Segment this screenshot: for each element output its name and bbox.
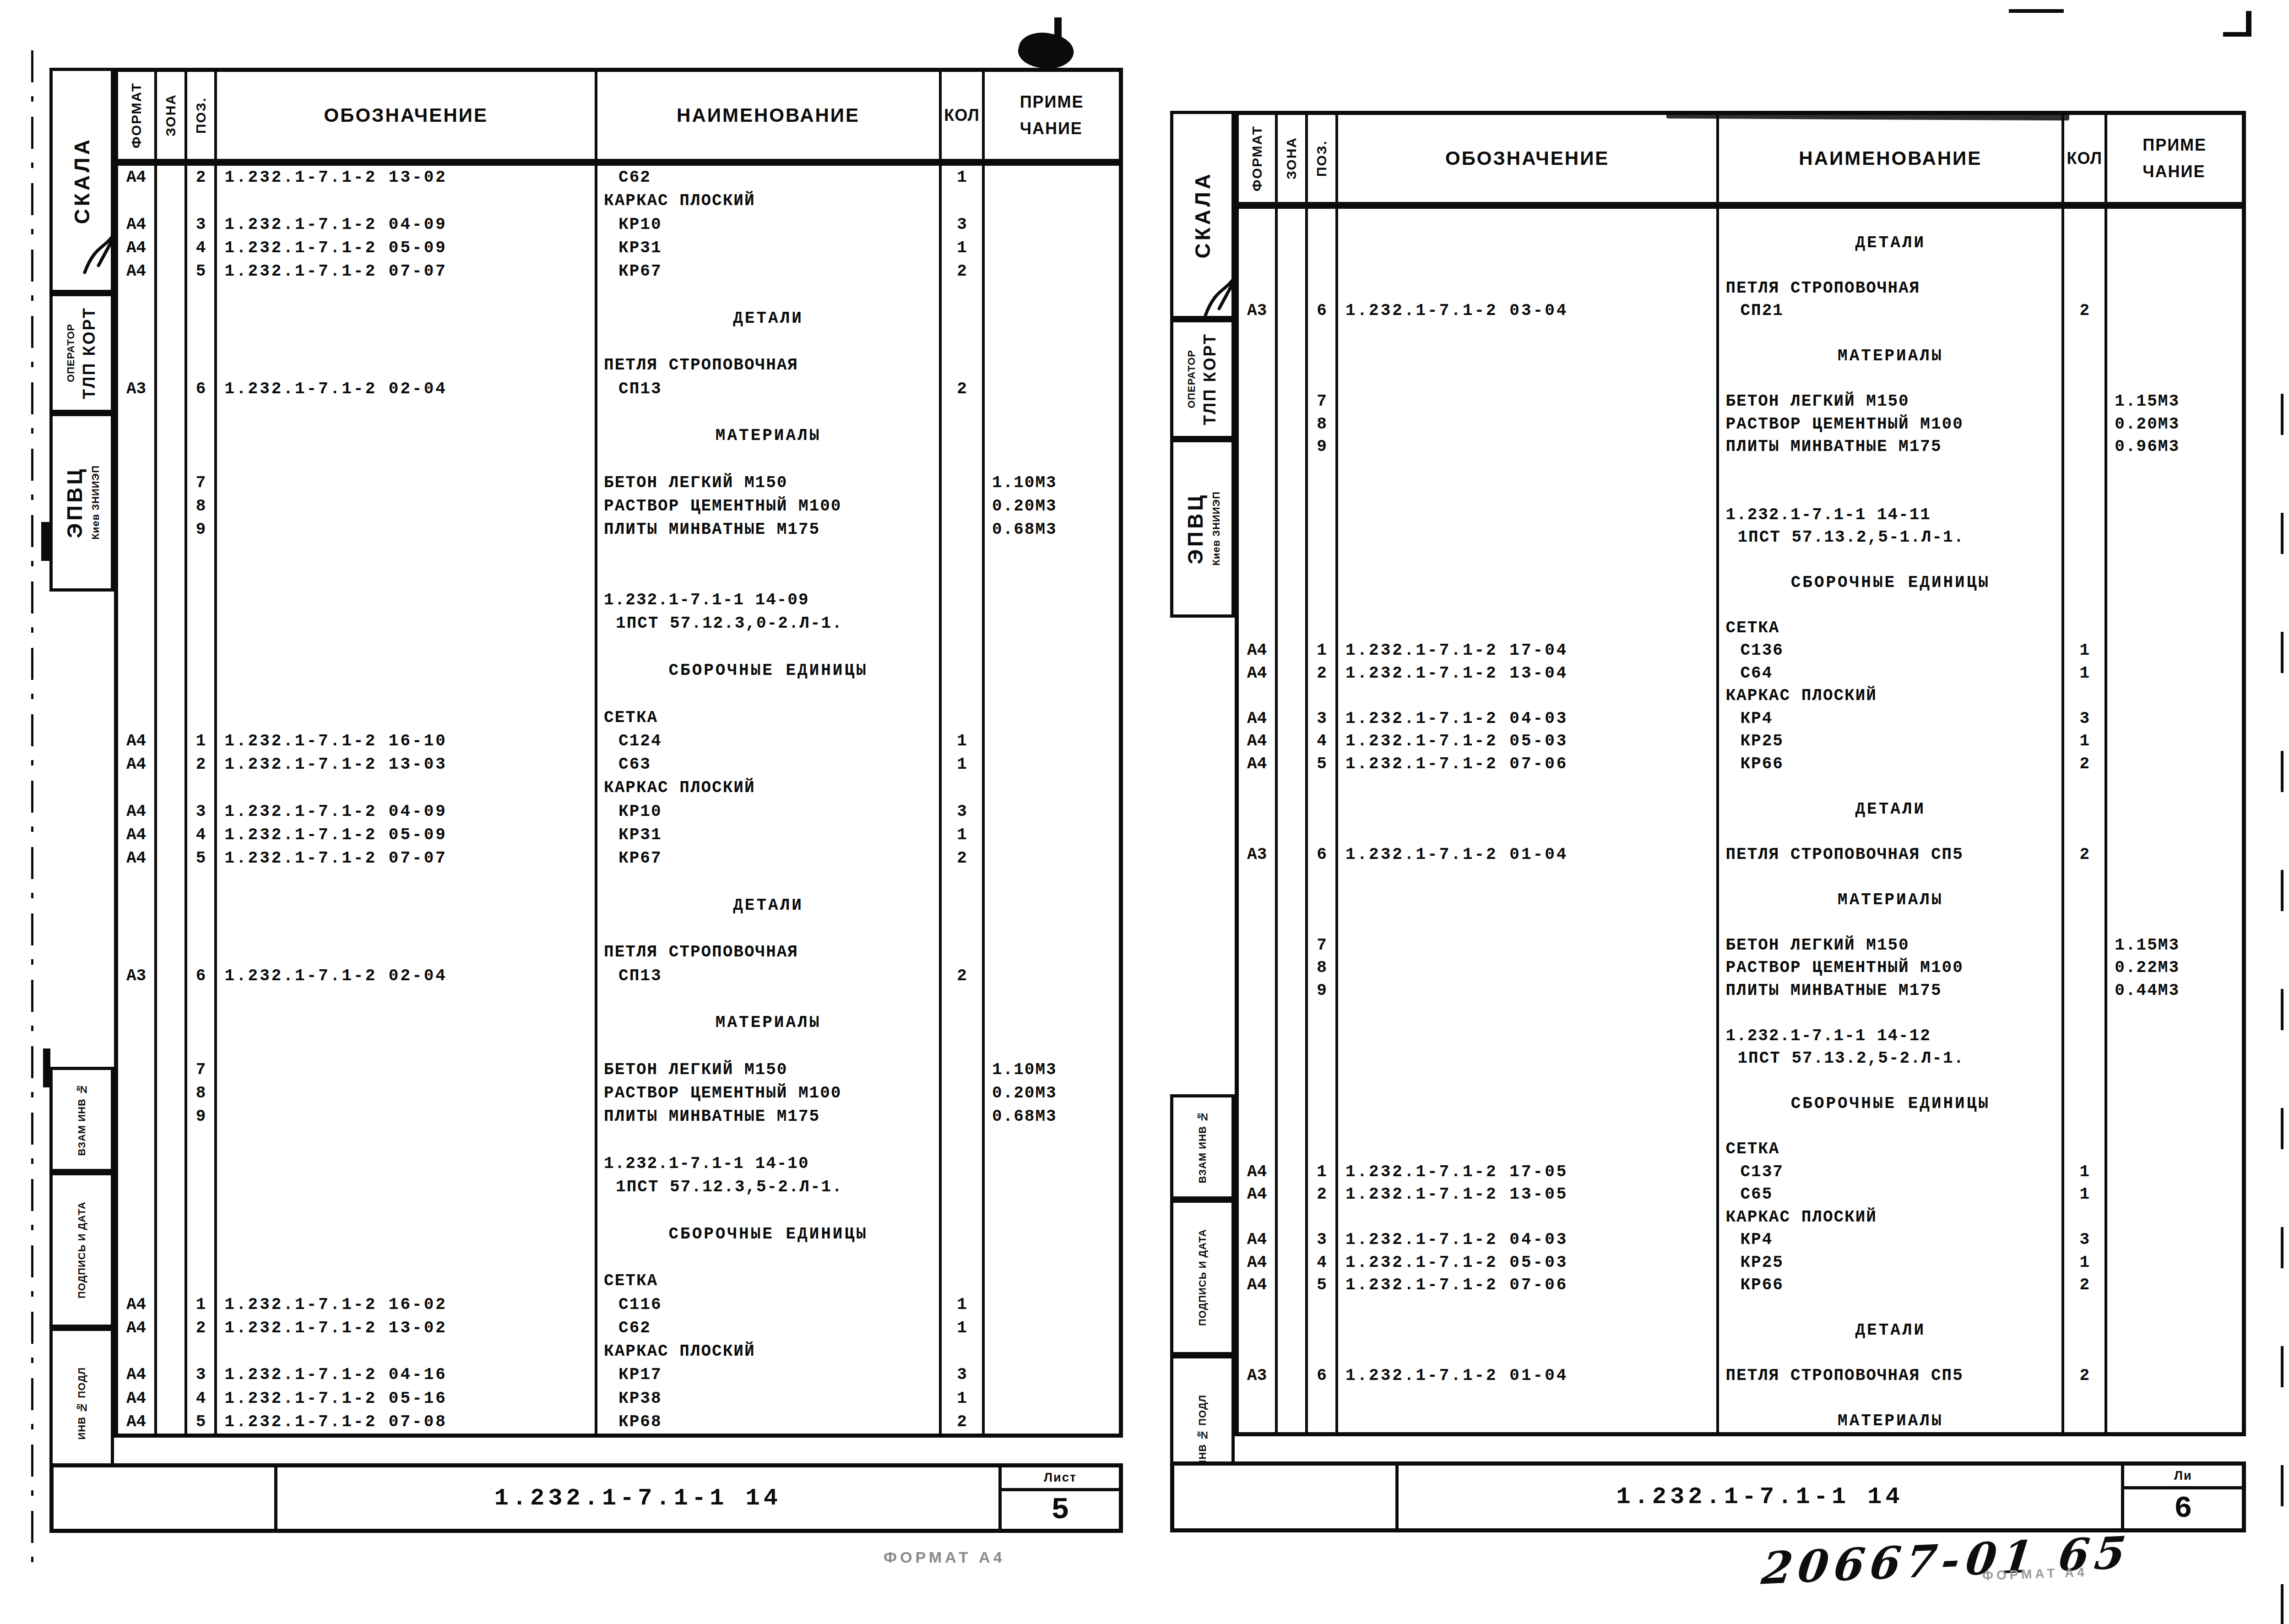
col-header-note: ПРИМЕЧАНИЕ (2107, 115, 2242, 202)
cell-t (2107, 209, 2242, 231)
cell-f (118, 1199, 157, 1222)
cell-z (1278, 1002, 1308, 1024)
cell-q: 3 (942, 1363, 985, 1386)
cell-d (217, 307, 597, 330)
cell-n: КР4 (1719, 707, 2064, 730)
cell-n: КР4 (1719, 1228, 2064, 1251)
cell-z (1278, 820, 1308, 843)
vzam-inv-label: ВЗАМ ИНВ № (1197, 1111, 1209, 1183)
cell-d: 1.232.1-7.1-2 01-04 (1338, 1364, 1719, 1387)
cell-p (187, 612, 217, 635)
cell-z (157, 1152, 187, 1175)
cell-t (985, 1246, 1119, 1269)
cell-n: 1ПСТ 57.13.2,5-1.Л-1. (1719, 526, 2064, 549)
cell-d: 1.232.1-7.1-2 07-06 (1338, 753, 1719, 775)
cell-n (597, 988, 942, 1011)
cell-f: А4 (118, 260, 157, 283)
cell-z (157, 706, 187, 729)
cell-q (2064, 1387, 2107, 1409)
col-header-format: ФОРМАТ (118, 72, 157, 159)
cell-p (1308, 571, 1338, 594)
cell-p: 8 (1308, 413, 1338, 435)
cell-n: 1.232.1-7.1-1 14-11 (1719, 503, 2064, 526)
cell-z (1278, 753, 1308, 775)
cell-q (2064, 866, 2107, 888)
cell-d (217, 1129, 597, 1152)
cell-p (187, 706, 217, 729)
cell-z (157, 213, 187, 236)
cell-q (2064, 1070, 2107, 1092)
cell-q (2064, 209, 2107, 231)
cell-n (1719, 458, 2064, 480)
cell-p: 4 (1308, 1251, 1338, 1273)
cell-q (942, 706, 985, 729)
cell-z (157, 1222, 187, 1246)
cell-z (1278, 435, 1308, 458)
cell-q: 1 (2064, 1183, 2107, 1206)
cell-t (2107, 1024, 2242, 1047)
cell-f (1239, 1342, 1278, 1364)
cell-q: 1 (942, 236, 985, 260)
cell-q (942, 1269, 985, 1293)
cell-q (942, 612, 985, 635)
cell-d: 1.232.1-7.1-2 13-03 (217, 753, 597, 776)
table-row: А421.232.1-7.1-2 13-03С631 (118, 753, 1119, 776)
cell-q (2064, 1047, 2107, 1070)
cell-q (942, 988, 985, 1011)
cell-f (118, 401, 157, 424)
cell-q (942, 447, 985, 471)
cell-t (2107, 299, 2242, 322)
cell-z (1278, 526, 1308, 549)
cell-f (1239, 617, 1278, 639)
table-row (1239, 254, 2242, 277)
organization-city: Киев ЗНИИЭП (90, 465, 102, 540)
cell-z (157, 1293, 187, 1316)
sheet-number-box: Лист 5 (1002, 1467, 1119, 1529)
cell-t (985, 1175, 1119, 1199)
cell-p (1308, 367, 1338, 390)
cell-t (985, 424, 1119, 447)
cell-p (187, 330, 217, 353)
cell-t (2107, 1274, 2242, 1296)
cell-q (2064, 1115, 2107, 1137)
cell-n: МАТЕРИАЛЫ (1719, 889, 2064, 911)
cell-p (187, 401, 217, 424)
cell-f (118, 635, 157, 659)
organization-box: ЭПВЦ Киев ЗНИИЭП (1170, 439, 1235, 618)
cell-q (2064, 775, 2107, 798)
cut-line-right (2281, 394, 2284, 1624)
table-row: СБОРОЧНЫЕ ЕДИНИЦЫ (118, 659, 1119, 682)
cell-q (942, 682, 985, 706)
cell-p (187, 1034, 217, 1058)
cell-z (1278, 1387, 1308, 1409)
cell-z (1278, 322, 1308, 344)
cell-d (217, 1105, 597, 1128)
cell-f (1239, 367, 1278, 390)
cell-d (1338, 458, 1719, 480)
cell-t (985, 189, 1119, 212)
cell-z (1278, 1092, 1308, 1115)
cell-d (217, 330, 597, 353)
inv-podl-label: ИНВ № ПОДЛ (1197, 1395, 1209, 1467)
cell-n: СЕТКА (1719, 1138, 2064, 1160)
cell-d (217, 894, 597, 917)
table-row: 1ПСТ 57.12.3,5-2.Л-1. (118, 1175, 1119, 1199)
cell-z (157, 166, 187, 189)
cell-n: КАРКАС ПЛОСКИЙ (597, 189, 942, 212)
cell-n: СБОРОЧНЫЕ ЕДИНИЦЫ (1719, 571, 2064, 594)
cell-t (985, 776, 1119, 799)
table-row: ДЕТАЛИ (118, 894, 1119, 917)
cell-n (597, 870, 942, 893)
table-row: 1ПСТ 57.13.2,5-1.Л-1. (1239, 526, 2242, 549)
cell-f (1239, 889, 1278, 911)
cell-d: 1.232.1-7.1-2 05-09 (217, 236, 597, 260)
cell-n (597, 635, 942, 659)
cell-p: 3 (187, 800, 217, 823)
cell-p (187, 917, 217, 940)
cell-f (1239, 1410, 1278, 1432)
cell-d: 1.232.1-7.1-2 07-07 (217, 847, 597, 870)
table-row: ДЕТАЛИ (118, 307, 1119, 330)
cell-p: 1 (1308, 1160, 1338, 1183)
margin-tick (41, 522, 49, 561)
cell-n (1719, 209, 2064, 231)
cell-p: 6 (187, 377, 217, 401)
table-row: МАТЕРИАЛЫ (1239, 889, 2242, 911)
cell-q: 3 (2064, 707, 2107, 730)
table-row: 7БЕТОН ЛЕГКИЙ М1501.10М3 (118, 1058, 1119, 1081)
cell-d (1338, 367, 1719, 390)
cell-d (217, 1081, 597, 1105)
cell-z (157, 1081, 187, 1105)
cell-q (2064, 956, 2107, 979)
table-row: А361.232.1-7.1-2 01-04ПЕТЛЯ СТРОПОВОЧНАЯ… (1239, 843, 2242, 866)
cell-t (985, 1269, 1119, 1293)
table-row: А451.232.1-7.1-2 07-07КР672 (118, 260, 1119, 283)
cell-d (217, 1034, 597, 1058)
cell-d (1338, 820, 1719, 843)
cell-n: СЕТКА (1719, 617, 2064, 639)
cell-n: ПЛИТЫ МИНВАТНЫЕ М175 (597, 518, 942, 541)
cell-q (942, 776, 985, 799)
cell-z (157, 682, 187, 706)
cell-f (118, 588, 157, 612)
cell-t (985, 1410, 1119, 1434)
cell-n: 1.232.1-7.1-1 14-10 (597, 1152, 942, 1175)
cell-z (1278, 956, 1308, 979)
cell-f (1239, 231, 1278, 254)
cell-d (217, 1246, 597, 1269)
cell-q (2064, 594, 2107, 616)
table-row: А451.232.1-7.1-2 07-06КР662 (1239, 753, 2242, 775)
cell-t (985, 635, 1119, 659)
cell-n: КР17 (597, 1363, 942, 1386)
cell-n: БЕТОН ЛЕГКИЙ М150 (597, 471, 942, 494)
title-block-empty (54, 1467, 277, 1529)
format-note-left: ФОРМАТ А4 (884, 1548, 1005, 1566)
cell-t (2107, 458, 2242, 480)
table-row: МАТЕРИАЛЫ (1239, 1410, 2242, 1432)
cell-q: 1 (2064, 730, 2107, 752)
cell-t (2107, 503, 2242, 526)
cell-p: 6 (1308, 299, 1338, 322)
cell-t (2107, 254, 2242, 277)
cell-n (1719, 1115, 2064, 1137)
operator-value: ТЛП КОРТ (1200, 333, 1220, 425)
cell-q (2064, 934, 2107, 956)
cell-p: 5 (187, 847, 217, 870)
cell-d (1338, 1024, 1719, 1047)
table-row: СБОРОЧНЫЕ ЕДИНИЦЫ (1239, 571, 2242, 594)
table-row: 9ПЛИТЫ МИНВАТНЫЕ М1750.44М3 (1239, 979, 2242, 1001)
table-row: А441.232.1-7.1-2 05-09КР311 (118, 823, 1119, 847)
cell-t (985, 1293, 1119, 1316)
organization-city: Киев ЗНИИЭП (1210, 491, 1222, 566)
cell-q: 3 (942, 800, 985, 823)
cell-z (1278, 1296, 1308, 1319)
cell-t (985, 1152, 1119, 1175)
cell-z (1278, 345, 1308, 367)
cell-z (157, 917, 187, 940)
table-row: 9ПЛИТЫ МИНВАТНЫЕ М1750.68М3 (118, 1105, 1119, 1128)
cell-z (1278, 1024, 1308, 1047)
cell-t: 0.68М3 (985, 518, 1119, 541)
cell-q (2064, 798, 2107, 820)
cell-p: 4 (187, 236, 217, 260)
cell-p: 4 (187, 823, 217, 847)
operator-box: ОПЕРАТОР ТЛП КОРТ (49, 293, 114, 413)
cell-t (985, 870, 1119, 893)
cell-p (187, 940, 217, 964)
cell-d (217, 682, 597, 706)
cell-f: А4 (1239, 1183, 1278, 1206)
cell-q (2064, 458, 2107, 480)
cell-p (1308, 617, 1338, 639)
cell-d (1338, 911, 1719, 934)
table-row: А441.232.1-7.1-2 05-03КР251 (1239, 730, 2242, 752)
cell-z (157, 401, 187, 424)
cell-t: 0.20М3 (2107, 413, 2242, 435)
cell-t (2107, 322, 2242, 344)
table-row: А441.232.1-7.1-2 05-03КР251 (1239, 1251, 2242, 1273)
podpis-data-label: ПОДПИСЬ И ДАТА (76, 1201, 88, 1298)
cell-d (1338, 1296, 1719, 1319)
cell-t (985, 612, 1119, 635)
cell-p (187, 1222, 217, 1246)
cell-t (2107, 549, 2242, 571)
col-header-zone: ЗОНА (1278, 115, 1308, 202)
table-row (118, 917, 1119, 940)
cell-n (597, 1129, 942, 1152)
col-header-pos: ПОЗ. (187, 72, 217, 159)
cell-d (1338, 934, 1719, 956)
table-row: КАРКАС ПЛОСКИЙ (118, 1340, 1119, 1363)
table-row (118, 1034, 1119, 1058)
cell-n (1719, 322, 2064, 344)
cell-f: А3 (1239, 299, 1278, 322)
table-row: 7БЕТОН ЛЕГКИЙ М1501.15М3 (1239, 934, 2242, 956)
cell-z (1278, 1115, 1308, 1137)
cell-t (985, 729, 1119, 753)
cell-z (1278, 1138, 1308, 1160)
cell-p: 1 (1308, 639, 1338, 662)
sheet-label: Ли (2124, 1466, 2242, 1489)
cell-f (1239, 594, 1278, 616)
cell-q: 3 (942, 213, 985, 236)
cell-p (1308, 322, 1338, 344)
cell-q (2064, 1206, 2107, 1228)
cell-d: 1.232.1-7.1-2 05-03 (1338, 1251, 1719, 1273)
table-row: МАТЕРИАЛЫ (118, 424, 1119, 447)
cell-t (985, 236, 1119, 260)
cell-n (1719, 775, 2064, 798)
cell-n (597, 917, 942, 940)
table-row: СБОРОЧНЫЕ ЕДИНИЦЫ (1239, 1092, 2242, 1115)
cell-p (1308, 1092, 1338, 1115)
cell-p (187, 682, 217, 706)
cell-p (1308, 1206, 1338, 1228)
document-number: 1.232.1-7.1-1 14 (277, 1467, 1002, 1529)
cell-d (1338, 549, 1719, 571)
cell-z (1278, 1070, 1308, 1092)
table-row: А421.232.1-7.1-2 13-05С651 (1239, 1183, 2242, 1206)
cell-t (2107, 843, 2242, 866)
cell-q (2064, 503, 2107, 526)
cell-p (1308, 775, 1338, 798)
cell-q (2064, 390, 2107, 413)
cell-t (985, 353, 1119, 377)
cell-z (1278, 934, 1308, 956)
cell-t (2107, 775, 2242, 798)
cell-p (1308, 911, 1338, 934)
cell-d (217, 1175, 597, 1199)
cell-z (157, 988, 187, 1011)
cell-q (942, 307, 985, 330)
cell-n: БЕТОН ЛЕГКИЙ М150 (1719, 934, 2064, 956)
cell-p: 3 (1308, 707, 1338, 730)
cell-t (985, 377, 1119, 401)
cell-n: ПЛИТЫ МИНВАТНЫЕ М175 (597, 1105, 942, 1128)
cell-p (187, 588, 217, 612)
cell-z (157, 236, 187, 260)
cell-p (1308, 1070, 1338, 1092)
cell-p (1308, 1002, 1338, 1024)
cell-q (2064, 1138, 2107, 1160)
cell-q (2064, 1410, 2107, 1432)
cell-p: 9 (187, 518, 217, 541)
cell-d (1338, 684, 1719, 707)
cell-n (1719, 594, 2064, 616)
table-row: СЕТКА (118, 706, 1119, 729)
cell-p: 1 (187, 729, 217, 753)
cell-q (2064, 277, 2107, 299)
cell-z (1278, 1183, 1308, 1206)
cell-p (187, 894, 217, 917)
cell-n: ПЕТЛЯ СТРОПОВОЧНАЯ (597, 940, 942, 964)
cell-p: 8 (1308, 956, 1338, 979)
table-row: 1.232.1-7.1-1 14-09 (118, 588, 1119, 612)
cell-p (1308, 277, 1338, 299)
cell-q: 2 (942, 1410, 985, 1434)
cell-d (217, 988, 597, 1011)
cell-p (1308, 1115, 1338, 1137)
cell-n (1719, 254, 2064, 277)
cell-f (118, 1105, 157, 1128)
cell-z (1278, 209, 1308, 231)
cell-p (1308, 594, 1338, 616)
cell-p (1308, 1138, 1338, 1160)
table-row: МАТЕРИАЛЫ (1239, 345, 2242, 367)
cell-q: 2 (942, 847, 985, 870)
cell-p (187, 189, 217, 212)
cell-n: 1ПСТ 57.12.3,0-2.Л-1. (597, 612, 942, 635)
cell-q (942, 565, 985, 588)
cell-t (2107, 231, 2242, 254)
cell-f (118, 1011, 157, 1034)
table-row: КАРКАС ПЛОСКИЙ (1239, 1206, 2242, 1228)
organization-box: ЭПВЦ Киев ЗНИИЭП (49, 413, 114, 592)
title-block-empty (1174, 1466, 1399, 1528)
cell-f (1239, 322, 1278, 344)
cell-d (1338, 231, 1719, 254)
cell-n (597, 401, 942, 424)
table-row: А361.232.1-7.1-2 03-04СП212 (1239, 299, 2242, 322)
cell-q (942, 494, 985, 518)
cell-p (187, 1129, 217, 1152)
cell-z (157, 1105, 187, 1128)
cell-q (942, 330, 985, 353)
cell-p (1308, 209, 1338, 231)
cell-d (1338, 956, 1719, 979)
cell-p: 6 (1308, 1364, 1338, 1387)
cell-f (118, 988, 157, 1011)
cell-d (217, 1222, 597, 1246)
cell-q (942, 917, 985, 940)
corner-mark (2009, 9, 2064, 13)
cell-z (1278, 1160, 1308, 1183)
cell-d (1338, 390, 1719, 413)
cell-q (942, 1222, 985, 1246)
cell-f: А3 (1239, 1364, 1278, 1387)
cell-z (1278, 1274, 1308, 1296)
cell-p (1308, 1296, 1338, 1319)
organization-name: ЭПВЦ (62, 467, 87, 538)
cell-f (1239, 1115, 1278, 1137)
cell-z (157, 189, 187, 212)
cell-t (2107, 367, 2242, 390)
table-row: А421.232.1-7.1-2 13-02С621 (118, 166, 1119, 189)
cell-t (2107, 911, 2242, 934)
cell-t (2107, 1410, 2242, 1432)
cell-n: КР67 (597, 847, 942, 870)
cell-q (2064, 571, 2107, 594)
cell-z (157, 729, 187, 753)
cell-d (217, 471, 597, 494)
spec-sheet-6: СКАЛА ОПЕРАТОР ТЛП КОРТ ЭПВЦ Киев ЗНИИЭП… (1170, 111, 2246, 1532)
cell-p: 3 (1308, 1228, 1338, 1251)
table-row: А421.232.1-7.1-2 13-02С621 (118, 1316, 1119, 1340)
cell-f (1239, 820, 1278, 843)
cell-d: 1.232.1-7.1-2 07-08 (217, 1410, 597, 1434)
table-row: СЕТКА (118, 1269, 1119, 1293)
cell-f (1239, 549, 1278, 571)
cell-q (942, 353, 985, 377)
cell-z (157, 1199, 187, 1222)
table-row: А431.232.1-7.1-2 04-03КР43 (1239, 707, 2242, 730)
